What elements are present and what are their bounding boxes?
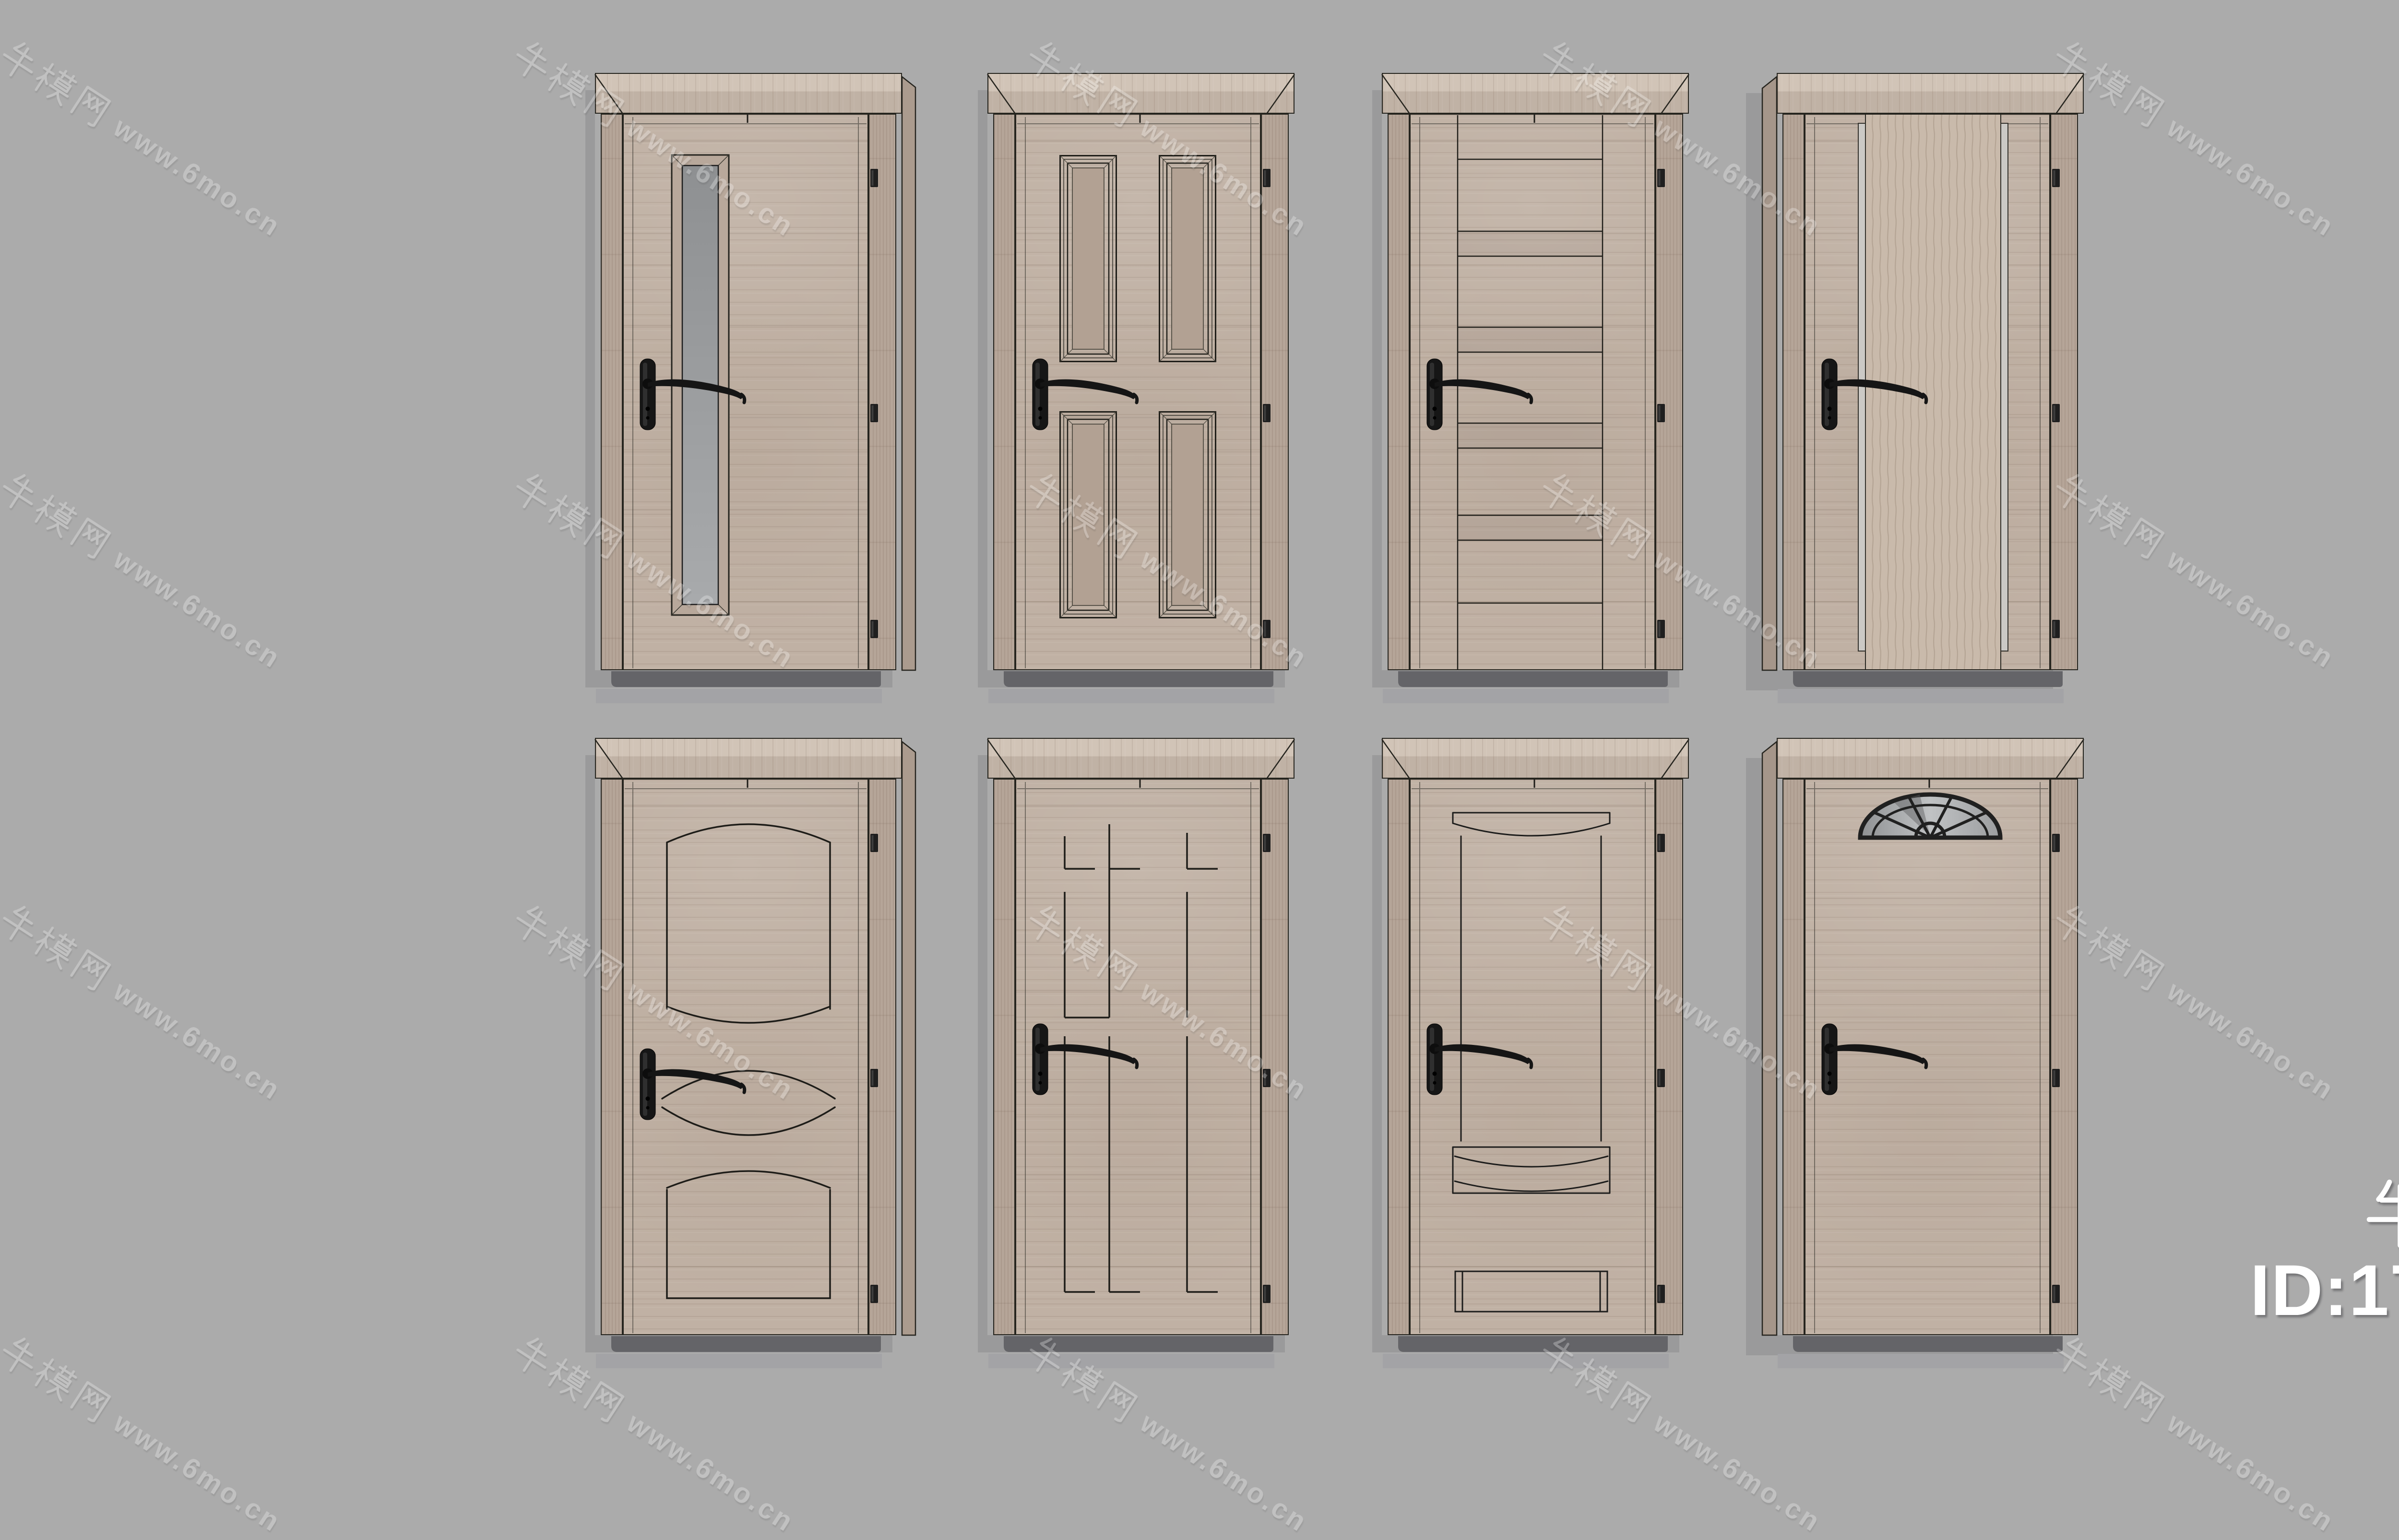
model-preview-canvas: { "page": { "description": "3D model pre… <box>0 0 2399 1404</box>
door-handle <box>1427 359 1532 430</box>
mo-glyph-icon <box>29 57 82 110</box>
brand-logo <box>2363 1176 2399 1248</box>
door-handle <box>1033 1024 1137 1095</box>
wang-glyph-icon <box>1091 1375 1144 1428</box>
wang-glyph-icon <box>2118 943 2171 996</box>
wang-glyph-icon <box>64 943 118 996</box>
mo-glyph-icon <box>29 1352 82 1405</box>
door-geometric-grooves <box>987 738 1295 1335</box>
brand-badge: 牛模网 ID:176760 <box>2250 1176 2399 1326</box>
door-arched-bands <box>1382 738 1689 1335</box>
door-handle <box>1822 1024 1926 1095</box>
niu-glyph-icon <box>2363 1176 2399 1248</box>
fanlight-window <box>1860 794 2000 838</box>
wang-glyph-icon <box>64 511 118 565</box>
door-center-board-inlays <box>1777 73 2084 670</box>
door-details <box>968 738 1314 1359</box>
niu-glyph-icon <box>0 465 47 519</box>
door-handle <box>1427 1024 1532 1095</box>
watermark-url: www.6mo.cn <box>2162 1405 2341 1537</box>
door-details <box>1363 73 1708 694</box>
watermark: www.6mo.cn <box>0 465 290 676</box>
watermark-url: www.6mo.cn <box>109 542 288 674</box>
door-vertical-glass-slot <box>595 73 902 670</box>
niu-glyph-icon <box>0 1329 47 1382</box>
watermark-url: www.6mo.cn <box>2162 542 2341 674</box>
watermark-url: www.6mo.cn <box>2162 110 2341 242</box>
mo-glyph-icon <box>2082 1352 2136 1405</box>
door-details <box>1758 738 2103 1359</box>
watermark-url: www.6mo.cn <box>109 1405 288 1537</box>
watermark-url: www.6mo.cn <box>622 1405 801 1537</box>
door-arch-oval-grooves <box>595 738 902 1335</box>
watermark: www.6mo.cn <box>0 897 290 1108</box>
niu-glyph-icon <box>0 34 47 87</box>
wang-glyph-icon <box>578 1375 631 1428</box>
door-handle <box>640 1049 745 1120</box>
niu-glyph-icon <box>507 897 560 950</box>
door-horizontal-planks <box>1382 73 1689 670</box>
door-details <box>576 738 921 1359</box>
watermark-url: www.6mo.cn <box>109 110 288 242</box>
niu-glyph-icon <box>507 465 560 519</box>
wang-glyph-icon <box>2118 80 2171 133</box>
watermark-url: www.6mo.cn <box>1649 1405 1828 1537</box>
door-details <box>968 73 1314 694</box>
door-details <box>576 73 921 694</box>
watermark: www.6mo.cn <box>2047 1329 2343 1540</box>
niu-glyph-icon <box>0 897 47 950</box>
wang-glyph-icon <box>64 80 118 133</box>
mo-glyph-icon <box>29 920 82 973</box>
wang-glyph-icon <box>64 1375 118 1428</box>
wang-glyph-icon <box>2118 1375 2171 1428</box>
niu-glyph-icon <box>507 1329 560 1382</box>
door-four-panel <box>987 73 1295 670</box>
wang-glyph-icon <box>1604 1375 1658 1428</box>
door-fanlight-window <box>1777 738 2084 1335</box>
wang-glyph-icon <box>2118 511 2171 565</box>
watermark-url: www.6mo.cn <box>109 973 288 1105</box>
niu-glyph-icon <box>507 34 560 87</box>
watermark: www.6mo.cn <box>0 34 290 245</box>
door-details <box>1363 738 1708 1359</box>
model-id: ID:176760 <box>2250 1254 2399 1326</box>
watermark-url: www.6mo.cn <box>1136 1405 1315 1537</box>
watermark: www.6mo.cn <box>0 1329 290 1540</box>
door-details <box>1758 73 2103 694</box>
watermark-url: www.6mo.cn <box>2162 973 2341 1105</box>
mo-glyph-icon <box>29 488 82 542</box>
mo-glyph-icon <box>542 1352 595 1405</box>
